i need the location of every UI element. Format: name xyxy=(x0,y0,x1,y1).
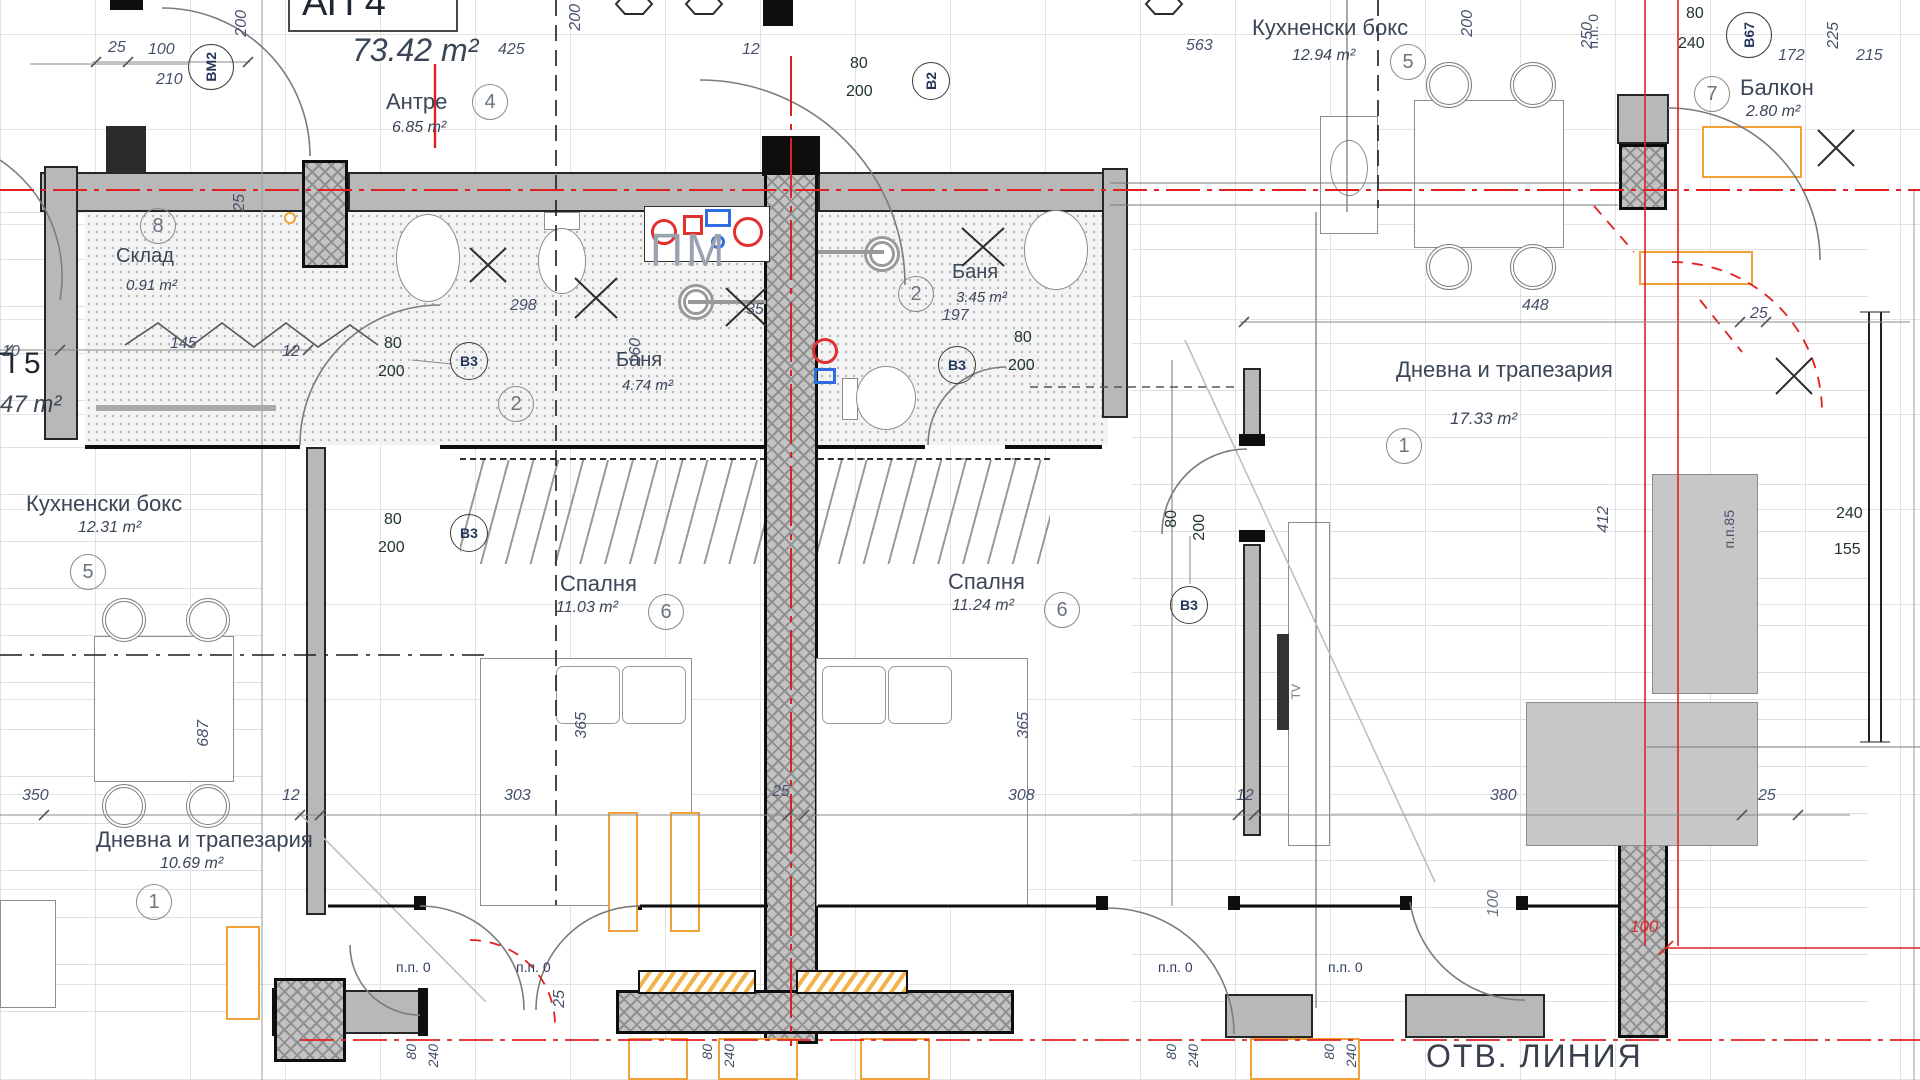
marker-b3-closet: В3 xyxy=(450,514,488,552)
dim: 80 xyxy=(384,336,402,353)
room-kitchen-left-name: Кухненски бокс xyxy=(26,492,182,515)
marker-label: В3 xyxy=(1180,597,1198,613)
threshold-hatch xyxy=(796,970,908,994)
room-balcony-name: Балкон xyxy=(1740,76,1814,99)
dim: 365 xyxy=(574,712,591,739)
room-number: 6 xyxy=(660,601,671,624)
balcony-bench-low xyxy=(1639,251,1753,285)
room-number: 2 xyxy=(910,283,921,306)
dim: 215 xyxy=(1856,48,1883,65)
room-living-right-name: Дневна и трапезария xyxy=(1396,358,1613,381)
marker-bm2: ВМ2 xyxy=(188,44,234,90)
door-jamb xyxy=(1400,896,1412,910)
dim: 10 xyxy=(2,344,20,361)
dining-table-right xyxy=(1414,100,1564,248)
balcony-bench-top xyxy=(1702,126,1802,178)
shaft-column xyxy=(764,172,818,1044)
shaft-top-cap xyxy=(762,136,820,176)
window-jamb-top-left xyxy=(106,126,146,174)
toilet-left-bath xyxy=(538,212,586,298)
room-balcony-area: 2.80 m² xyxy=(1746,104,1800,121)
chair xyxy=(186,784,230,828)
dim: 80 xyxy=(1164,510,1181,528)
dim: 200 xyxy=(378,540,405,557)
stub-top xyxy=(763,0,793,26)
marker-b3-bedroom-right: В3 xyxy=(1170,586,1208,624)
column-entry xyxy=(302,160,348,268)
dim: 563 xyxy=(1186,38,1213,55)
adjacent-apartment-area: 47 m² xyxy=(0,392,61,417)
pp0-label: п.п. 0 xyxy=(1328,960,1363,975)
room-kitchen-left-number: 5 xyxy=(70,554,106,590)
room-banya-left-number: 2 xyxy=(498,386,534,422)
stub-top-left xyxy=(110,0,143,10)
dim: 172 xyxy=(1778,48,1805,65)
room-bedroom-right-number: 6 xyxy=(1044,592,1080,628)
dim: 240 xyxy=(1836,506,1863,523)
room-number: 8 xyxy=(152,215,163,238)
marker-label: В2 xyxy=(923,72,939,90)
chair xyxy=(102,598,146,642)
room-number: 6 xyxy=(1056,599,1067,622)
dining-table-left xyxy=(94,636,234,782)
balcony-slab xyxy=(616,990,1014,1034)
dim: 240 xyxy=(722,1044,737,1067)
door-jamb xyxy=(1239,530,1265,542)
dim: 303 xyxy=(504,788,531,805)
dim: 200 xyxy=(1460,10,1477,37)
dim: 240 xyxy=(1186,1044,1201,1067)
room-sklad-area: 0.91 m² xyxy=(126,278,177,294)
room-banya-right-area: 3.45 m² xyxy=(956,290,1007,306)
plumb-blue-box xyxy=(814,368,836,384)
plumb-red-ring xyxy=(812,338,838,364)
dim: 80 xyxy=(384,512,402,529)
room-number: 4 xyxy=(484,91,495,114)
apartment-title: АП 4 xyxy=(302,0,386,24)
room-antre-name: Антре xyxy=(386,90,447,113)
wall-top-left xyxy=(40,172,308,212)
room-living-right-number: 1 xyxy=(1386,428,1422,464)
dim: 80 xyxy=(1686,6,1704,23)
dim: 155 xyxy=(1834,542,1861,559)
room-number: 2 xyxy=(510,393,521,416)
dim: 25 xyxy=(108,40,126,57)
sink-right-bath xyxy=(1024,210,1088,290)
chair xyxy=(186,598,230,642)
wardrobe-orange xyxy=(608,812,638,932)
dim: 160 xyxy=(628,338,645,365)
room-banya-right-name: Баня xyxy=(952,262,998,283)
room-sklad-number: 8 xyxy=(140,208,176,244)
column-bottom-right xyxy=(1618,842,1668,1038)
tv xyxy=(1277,634,1289,730)
wall-top-right xyxy=(818,172,1110,212)
room-number: 1 xyxy=(1398,435,1409,458)
tv-label: TV xyxy=(1290,684,1303,699)
marker-label: ВМ2 xyxy=(203,52,219,82)
dim: 12 xyxy=(282,788,300,805)
room-antre-area: 6.85 m² xyxy=(392,120,446,137)
dim: 12 xyxy=(1236,788,1254,805)
kitchen-sink xyxy=(1330,140,1368,196)
dim: 225 xyxy=(1826,22,1843,49)
dim: 425 xyxy=(498,42,525,59)
marker-b3-bath-right: В3 xyxy=(938,346,976,384)
pillow xyxy=(622,666,686,724)
dim: 25 xyxy=(772,784,790,801)
marker-b3-bath-left: В3 xyxy=(450,342,488,380)
door-jamb xyxy=(1096,896,1108,910)
floor-plan: АП 4 73.42 m² П 5 47 m² Антре 4 6.85 m² … xyxy=(0,0,1920,1080)
toilet-bowl xyxy=(856,366,916,430)
pillow xyxy=(822,666,886,724)
marker-label: В3 xyxy=(948,357,966,373)
marker-label: В67 xyxy=(1741,22,1757,48)
wall-divider-right-top xyxy=(1243,368,1261,442)
pp0-label: п.п. 0 xyxy=(516,960,551,975)
dim: 80 xyxy=(1164,1044,1179,1060)
room-kitchen-left-area: 12.31 m² xyxy=(78,520,141,537)
room-banya-left-area: 4.74 m² xyxy=(622,378,673,394)
dim: 200 xyxy=(1008,358,1035,375)
dim-red: 100 xyxy=(1630,918,1658,936)
shower-head xyxy=(678,284,714,320)
chair xyxy=(1510,62,1556,108)
dim: 80 xyxy=(850,56,868,73)
dim: 25 xyxy=(1750,306,1768,323)
dim: 687 xyxy=(196,720,213,747)
dim: 80 xyxy=(700,1044,715,1060)
plumb-red-ring xyxy=(733,217,763,247)
room-living-left-name: Дневна и трапезария xyxy=(96,828,313,851)
room-bedroom-left-area: 11.03 m² xyxy=(556,600,618,617)
bench-orange-left xyxy=(226,926,260,1020)
closet-right xyxy=(818,458,1050,564)
room-number: 1 xyxy=(148,891,159,914)
marker-label: В3 xyxy=(460,525,478,541)
room-living-left-area: 10.69 m² xyxy=(160,856,223,873)
dim: 448 xyxy=(1522,298,1549,315)
room-sklad-name: Склад xyxy=(116,246,174,267)
pp0-label: п.п. 0 xyxy=(396,960,431,975)
dim: 80 xyxy=(1014,330,1032,347)
marker-label: В3 xyxy=(460,353,478,369)
dim: 80 xyxy=(1322,1044,1337,1060)
column-balcony xyxy=(1619,144,1667,210)
terrace-furniture xyxy=(860,1038,930,1080)
room-bedroom-left-name: Спалня xyxy=(560,572,637,595)
dim: 12 xyxy=(282,344,300,361)
dim: 100 xyxy=(1486,890,1503,917)
sofa-vertical xyxy=(1652,474,1758,694)
room-bedroom-left-number: 6 xyxy=(648,594,684,630)
door-stop xyxy=(284,212,296,224)
balcony-door-panel xyxy=(1617,94,1669,144)
dim: 25 xyxy=(232,194,249,212)
pp0-label: п.п. 0 xyxy=(1158,960,1193,975)
dim: 298 xyxy=(510,298,537,315)
door-jamb xyxy=(414,896,426,910)
dim: 100 xyxy=(148,42,175,59)
pm-label: ПМ xyxy=(650,226,727,274)
threshold-hatch xyxy=(638,970,756,994)
wall-bottom-mid xyxy=(1225,994,1313,1038)
sink-left-bath xyxy=(396,214,460,302)
dim: 200 xyxy=(846,84,873,101)
room-balcony-number: 7 xyxy=(1694,76,1730,112)
terrace-furniture xyxy=(628,1038,688,1080)
dim: 412 xyxy=(1596,506,1613,533)
chair xyxy=(102,784,146,828)
room-living-left-number: 1 xyxy=(136,884,172,920)
room-bedroom-right-name: Спалня xyxy=(948,570,1025,593)
dim: 200 xyxy=(378,364,405,381)
pp85-label: п.п.85 xyxy=(1722,510,1737,549)
shower-head xyxy=(864,236,900,272)
toilet-bowl xyxy=(538,228,586,294)
pp0-label: п.п. 0 xyxy=(1586,14,1601,49)
dim: 25 xyxy=(552,990,569,1008)
door-jamb xyxy=(1516,896,1528,910)
wall-bath-right-end xyxy=(1102,168,1128,418)
door-jamb xyxy=(1239,434,1265,446)
dim: 240 xyxy=(1678,36,1705,53)
room-antre-number: 4 xyxy=(472,84,508,120)
apartment-area: 73.42 m² xyxy=(352,34,478,68)
wardrobe-orange xyxy=(670,812,700,932)
room-bedroom-right-area: 11.24 m² xyxy=(952,598,1014,615)
dim: 210 xyxy=(156,72,183,89)
dim: 200 xyxy=(568,4,585,31)
room-kitchen-right-name: Кухненски бокс xyxy=(1252,16,1408,39)
otv-line-label: ОТВ. ЛИНИЯ xyxy=(1426,1040,1643,1074)
dim: 80 xyxy=(404,1044,419,1060)
door-jamb xyxy=(1228,896,1240,910)
room-banya-right-number: 2 xyxy=(898,276,934,312)
dim: 350 xyxy=(22,788,49,805)
pillow xyxy=(888,666,952,724)
dim: 145 xyxy=(170,336,197,353)
dim: 12 xyxy=(742,42,760,59)
room-number: 5 xyxy=(82,561,93,584)
dim: 365 xyxy=(1016,712,1033,739)
dim: 197 xyxy=(942,308,969,325)
dim: 380 xyxy=(1490,788,1517,805)
chair xyxy=(1510,244,1556,290)
room-kitchen-right-area: 12.94 m² xyxy=(1292,48,1355,65)
dim: 25 xyxy=(1758,788,1776,805)
door-jamb xyxy=(418,988,428,1036)
marker-b67: В67 xyxy=(1726,12,1772,58)
room-living-right-area: 17.33 m² xyxy=(1450,410,1517,428)
marker-b2: В2 xyxy=(912,62,950,100)
room-kitchen-right-number: 5 xyxy=(1390,44,1426,80)
table-bottom-left xyxy=(0,900,56,1008)
room-number: 5 xyxy=(1402,51,1413,74)
chair xyxy=(1426,62,1472,108)
dim: 200 xyxy=(234,10,251,37)
dim: 200 xyxy=(1192,514,1209,541)
toilet-right-bath xyxy=(842,366,916,432)
dim: 35 xyxy=(746,302,764,319)
sofa-horizontal xyxy=(1526,702,1758,846)
dim: 240 xyxy=(1344,1044,1359,1067)
dim: 240 xyxy=(426,1044,441,1067)
dim: 308 xyxy=(1008,788,1035,805)
corner-column-bottom-left xyxy=(274,978,346,1062)
room-number: 7 xyxy=(1706,83,1717,106)
chair xyxy=(1426,244,1472,290)
closet-left xyxy=(460,458,766,564)
wall-bottom-right xyxy=(1405,994,1545,1038)
